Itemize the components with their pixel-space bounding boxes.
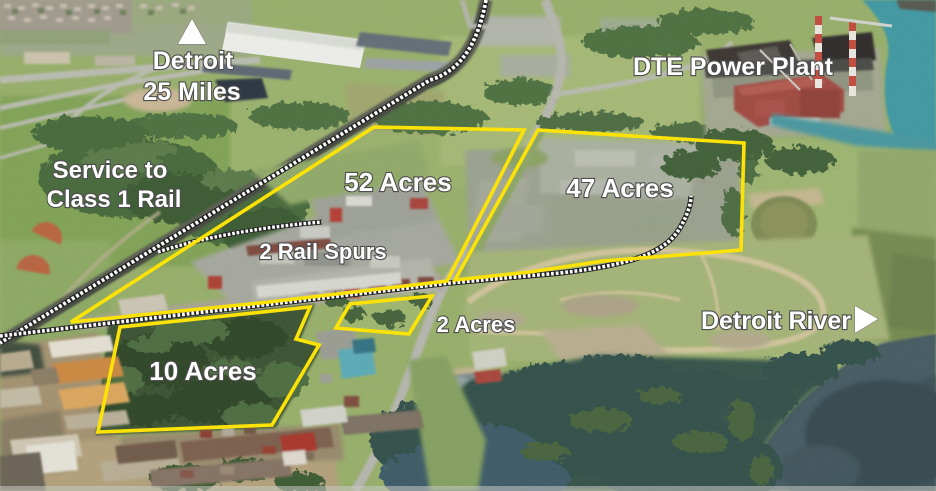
svg-text:25 Miles: 25 Miles	[143, 78, 240, 106]
svg-text:Detroit: Detroit	[153, 47, 234, 75]
svg-text:47 Acres: 47 Acres	[566, 173, 673, 203]
svg-text:Class 1 Rail: Class 1 Rail	[47, 186, 182, 213]
svg-text:2 Rail Spurs: 2 Rail Spurs	[259, 239, 386, 264]
svg-text:10 Acres: 10 Acres	[149, 356, 256, 386]
svg-text:2 Acres: 2 Acres	[437, 312, 516, 337]
svg-text:Detroit River: Detroit River	[701, 307, 851, 335]
svg-text:52 Acres: 52 Acres	[344, 167, 451, 197]
svg-text:Service to: Service to	[53, 157, 168, 184]
svg-text:DTE Power Plant: DTE Power Plant	[633, 53, 834, 81]
